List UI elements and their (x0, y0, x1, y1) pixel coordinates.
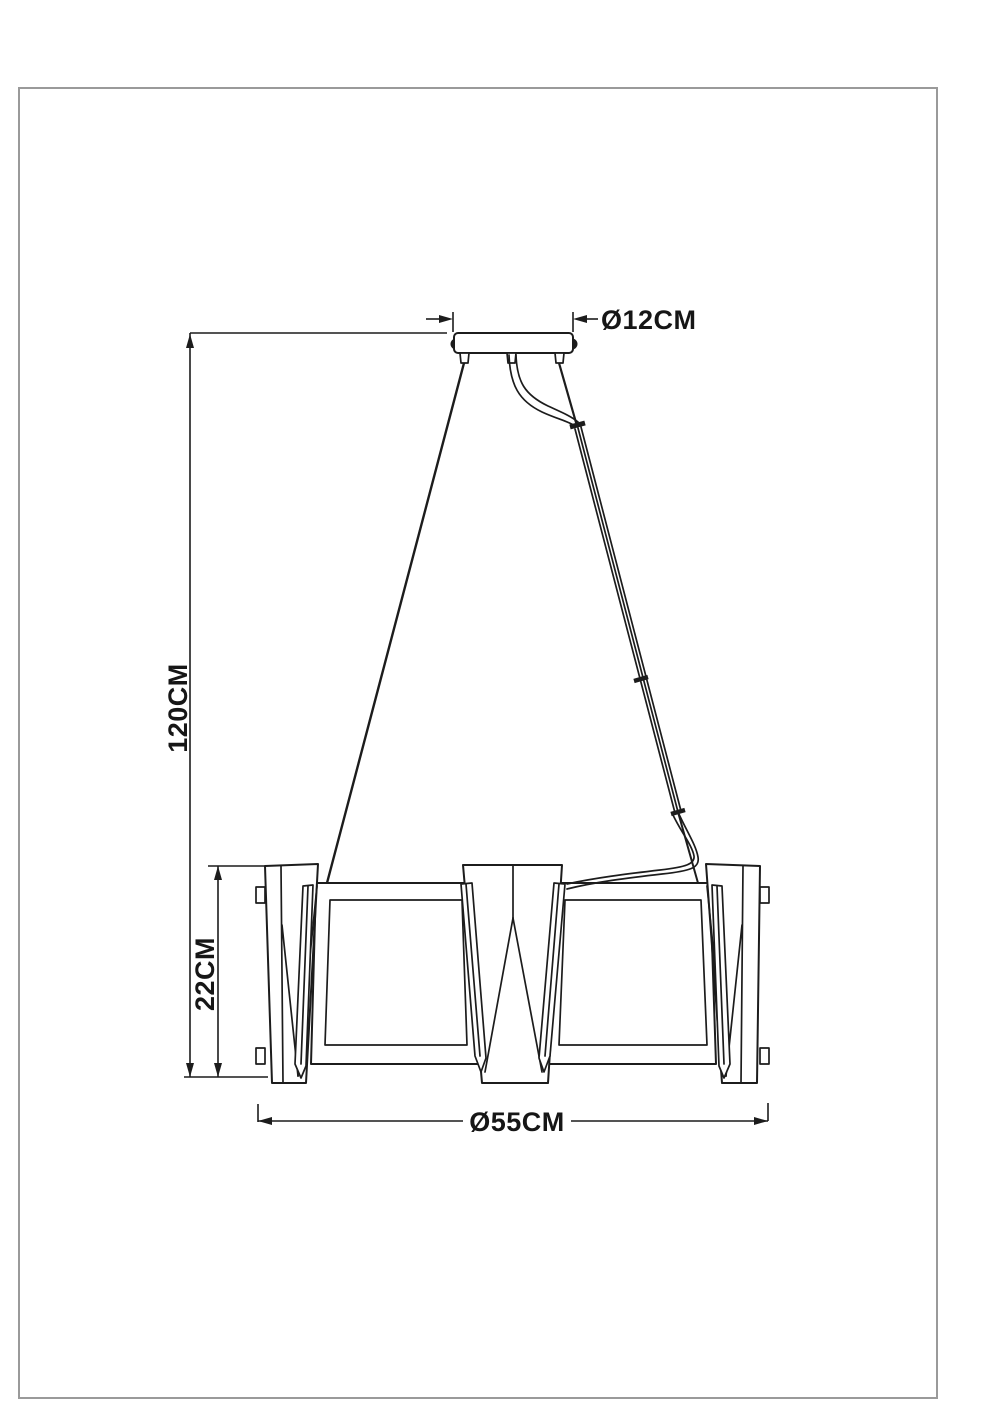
shade-frame-right (547, 883, 716, 1064)
suspension-height-label: 120CM (163, 663, 193, 753)
canopy-body (454, 333, 573, 353)
cable-gripper-right (555, 353, 564, 363)
mount-tab-right-top (760, 887, 769, 903)
ceiling-canopy (451, 333, 578, 363)
page-border (19, 88, 937, 1398)
shade-frame-left (311, 883, 479, 1064)
body-height-label: 22CM (190, 937, 220, 1011)
body-diameter-label: Ø55CM (469, 1107, 565, 1137)
mount-tab-left-bottom (256, 1048, 265, 1064)
cable-clamp-3 (671, 810, 685, 814)
drawing-page: Ø12CM 120CM 22CM Ø55CM (0, 0, 1000, 1414)
canopy-diameter-label: Ø12CM (601, 305, 697, 335)
suspension-system (327, 355, 698, 889)
mount-tab-right-bottom (760, 1048, 769, 1064)
dimension-canopy-diameter: Ø12CM (426, 305, 697, 335)
cable-gripper-left (460, 353, 469, 363)
power-cord-upper-a (509, 355, 575, 426)
chandelier-dimension-drawing: Ø12CM 120CM 22CM Ø55CM (0, 0, 1000, 1414)
power-cord-upper-b (516, 355, 578, 422)
cable-clamp-2 (634, 677, 648, 681)
suspension-cable-left (327, 363, 464, 883)
power-cord-lower-a (567, 812, 698, 889)
power-cord-lower-b (567, 815, 694, 884)
dimension-body-diameter: Ø55CM (258, 1103, 768, 1137)
mount-tab-left-top (256, 887, 265, 903)
